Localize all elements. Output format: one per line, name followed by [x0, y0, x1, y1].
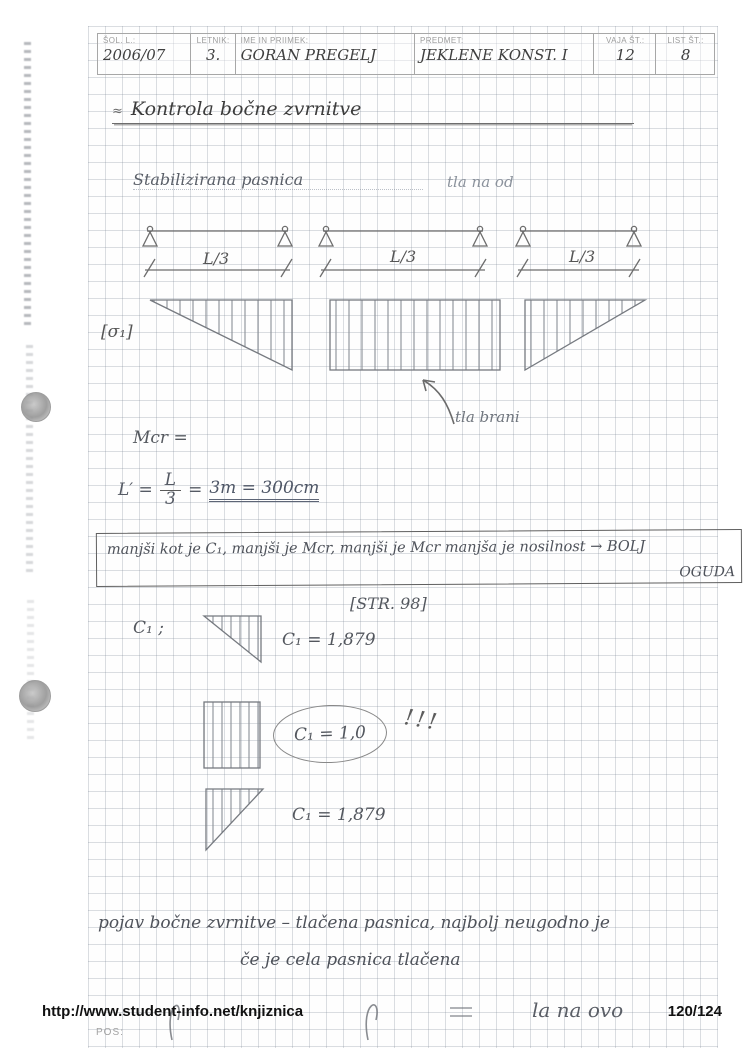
- c1-value-triangle-desc: C₁ = 1,879: [282, 630, 376, 650]
- field-value: 3.: [196, 46, 231, 64]
- note-paragraph-line2: če je cela pasnica tlačena: [240, 950, 461, 970]
- support-pin-icon: [516, 226, 530, 246]
- header-cell-exercise-no: VAJA ŠT.: 12: [594, 34, 656, 74]
- support-pin-icon: [278, 226, 292, 246]
- moment-triangle-left: [150, 300, 292, 370]
- field-value: 2006/07: [103, 46, 186, 64]
- span-length-label: L/3: [202, 249, 229, 268]
- header-cell-sheet-no: LIST ŠT.: 8: [656, 34, 714, 74]
- page-reference: [STR. 98]: [350, 594, 427, 613]
- support-pin-icon: [143, 226, 157, 246]
- pos-label: POS:: [96, 1027, 124, 1038]
- field-label: LIST ŠT.:: [661, 36, 710, 45]
- scan-spine-artifact: [26, 345, 33, 575]
- support-pin-icon: [627, 226, 641, 246]
- scanned-notebook-page: ŠOL. L.: 2006/07 LETNIK: 3. IME IN PRIIM…: [0, 0, 750, 1058]
- handwriting-fragment: la na ovo: [532, 998, 623, 1022]
- hole-punch: [21, 392, 51, 422]
- boxed-remark: manjši kot je C₁, manjši je Mcr, manjši …: [96, 529, 742, 587]
- fraction-l-over-3: L 3: [160, 472, 181, 509]
- header-cell-school-year: ŠOL. L.: 2006/07: [98, 34, 191, 74]
- length-equation: L′ = L 3 = 3m = 300cm: [118, 472, 319, 509]
- span-length-label: L/3: [568, 247, 595, 266]
- boxed-remark-line2: OGUDA: [679, 564, 735, 580]
- field-value: GORAN PREGELJ: [241, 46, 410, 64]
- title-text: Kontrola bočne zvrnitve: [131, 98, 361, 120]
- moment-rectangle-middle: [330, 300, 500, 370]
- dim-tick: [281, 259, 292, 277]
- page-title: ≈Kontrola bočne zvrnitve: [112, 98, 634, 124]
- field-label: PREDMET:: [420, 36, 589, 45]
- dim-tick: [320, 259, 331, 277]
- header-cell-name: IME IN PRIIMEK: GORAN PREGELJ: [236, 34, 415, 74]
- header-cell-year: LETNIK: 3.: [191, 34, 236, 74]
- length-lhs: L′ =: [118, 480, 153, 500]
- header-cell-subject: PREDMET: JEKLENE KONST. I: [415, 34, 594, 74]
- field-value: JEKLENE KONST. I: [420, 46, 589, 64]
- dim-tick: [475, 259, 486, 277]
- field-label: LETNIK:: [196, 36, 231, 45]
- note-paragraph-line1: pojav bočne zvrnitve – tlačena pasnica, …: [98, 913, 610, 933]
- field-value: 12: [599, 46, 651, 64]
- c1-value-triangle-asc: C₁ = 1,879: [292, 805, 386, 825]
- field-value: 8: [661, 46, 710, 64]
- mcr-equation: Mcr =: [133, 428, 188, 448]
- field-label: ŠOL. L.:: [103, 36, 186, 45]
- boxed-remark-line1: manjši kot je C₁, manjši je Mcr, manjši …: [107, 538, 733, 558]
- subtitle-floor-note: tla na od: [447, 173, 514, 191]
- title-marker: ≈: [112, 104, 123, 119]
- subtitle-stabilized-flange: Stabilizirana pasnica: [133, 170, 423, 190]
- dim-tick: [144, 259, 155, 277]
- moment-diagrams: [96, 292, 656, 377]
- c1-intro: C₁ ;: [133, 618, 164, 638]
- moment-triangle-right: [525, 300, 645, 370]
- c1-triangle-asc-icon: [200, 785, 270, 855]
- dim-tick: [517, 259, 528, 277]
- field-label: VAJA ŠT.:: [599, 36, 651, 45]
- scan-page-number: 120/124: [668, 1003, 722, 1020]
- support-pin-icon: [473, 226, 487, 246]
- beam-spans-diagram: L/3 L/3 L/3: [125, 213, 655, 295]
- c1-triangle-desc-icon: [200, 612, 270, 667]
- span-length-label: L/3: [389, 247, 416, 266]
- c1-rectangle-icon: [200, 698, 265, 773]
- field-label: IME IN PRIIMEK:: [241, 36, 410, 45]
- length-result: 3m = 300cm: [209, 478, 319, 502]
- arrow-annotation-text: tla brani: [455, 408, 520, 426]
- dim-tick: [629, 259, 640, 277]
- hole-punch: [19, 680, 51, 712]
- watermark-url: http://www.student-info.net/knjiznica: [42, 1003, 303, 1020]
- header-table: ŠOL. L.: 2006/07 LETNIK: 3. IME IN PRIIM…: [97, 33, 715, 75]
- scan-spine-artifact: [27, 600, 34, 740]
- scan-spine-artifact: [24, 42, 31, 330]
- support-pin-icon: [319, 226, 333, 246]
- equals-sign: =: [188, 480, 202, 500]
